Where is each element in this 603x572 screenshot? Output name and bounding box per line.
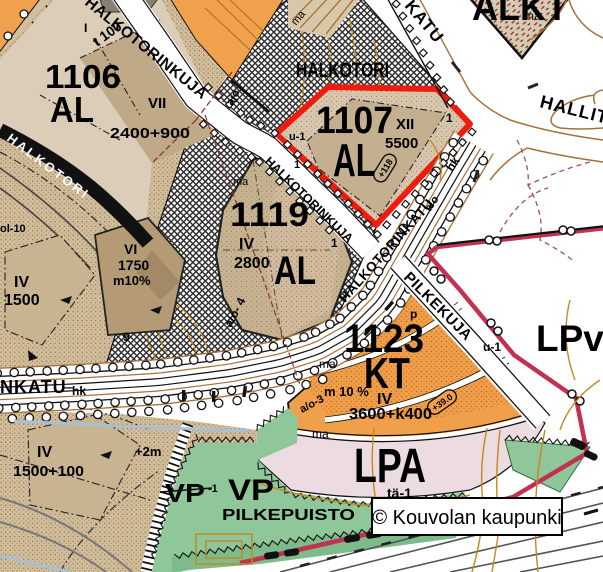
svg-text:ma: ma	[319, 357, 336, 371]
svg-text:PILKEPUISTO: PILKEPUISTO	[222, 507, 355, 524]
svg-text:IV: IV	[239, 236, 254, 253]
svg-text:AL: AL	[50, 89, 94, 130]
svg-text:9: 9	[123, 330, 130, 344]
svg-text:+2m: +2m	[135, 444, 161, 459]
svg-text:1: 1	[331, 236, 338, 250]
svg-text:u-1: u-1	[289, 131, 306, 143]
svg-text:LPvr: LPvr	[536, 318, 603, 359]
svg-text:1500: 1500	[4, 292, 40, 309]
svg-text:VP: VP	[165, 478, 205, 508]
svg-text:2400+900: 2400+900	[110, 125, 190, 142]
svg-text:m10%: m10%	[113, 273, 151, 288]
svg-text:ol-10: ol-10	[0, 223, 26, 235]
svg-text:HALKOTORI: HALKOTORI	[296, 59, 389, 82]
svg-text:VII: VII	[148, 95, 166, 112]
svg-text:AL: AL	[333, 134, 375, 186]
svg-text:ma: ma	[233, 176, 249, 188]
svg-text:1750: 1750	[118, 257, 149, 273]
svg-text:hk: hk	[72, 384, 86, 398]
svg-text:IV: IV	[37, 444, 52, 461]
svg-text:1: 1	[446, 111, 453, 125]
svg-text:IV: IV	[14, 274, 29, 291]
svg-text:I: I	[84, 21, 87, 35]
svg-text:m 10 %: m 10 %	[324, 384, 369, 399]
svg-text:p: p	[410, 307, 417, 321]
svg-text:AL: AL	[274, 249, 316, 293]
svg-text:5500: 5500	[385, 135, 418, 152]
svg-text:-1: -1	[208, 483, 218, 495]
svg-text:1: 1	[294, 159, 300, 171]
svg-text:—: —	[62, 380, 74, 394]
svg-text:2800: 2800	[234, 255, 270, 272]
svg-text:3600+k400: 3600+k400	[349, 406, 432, 423]
svg-text:© Kouvolan kaupunki: © Kouvolan kaupunki	[372, 507, 561, 529]
svg-text:XII: XII	[396, 116, 414, 133]
svg-text:VP: VP	[228, 474, 274, 507]
svg-text:VI: VI	[124, 241, 137, 257]
svg-text:u-1: u-1	[483, 340, 501, 354]
svg-text:1119: 1119	[230, 196, 309, 234]
svg-text:ALKT: ALKT	[472, 0, 568, 29]
svg-text:ma: ma	[312, 427, 329, 441]
svg-text:NKATU: NKATU	[0, 377, 67, 397]
svg-text:1500+100: 1500+100	[13, 463, 84, 480]
svg-text:ma: ma	[524, 9, 541, 23]
